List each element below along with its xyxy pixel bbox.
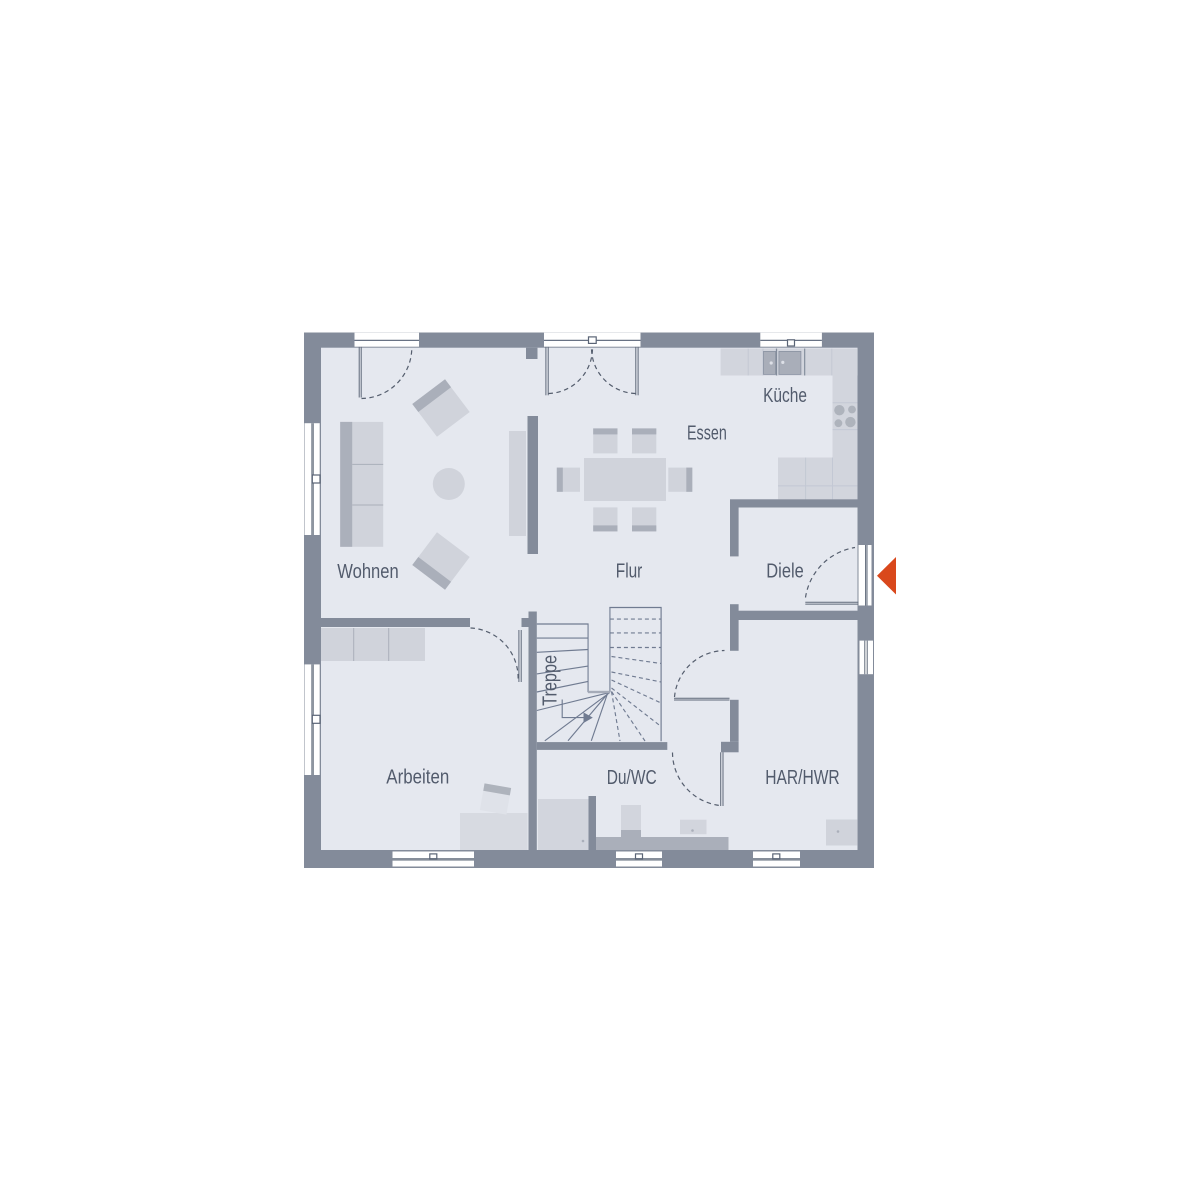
svg-text:Essen: Essen bbox=[687, 421, 727, 444]
svg-text:Wohnen: Wohnen bbox=[337, 560, 398, 583]
svg-text:Flur: Flur bbox=[616, 560, 643, 583]
svg-text:Küche: Küche bbox=[763, 384, 807, 407]
svg-text:Diele: Diele bbox=[766, 560, 804, 583]
svg-text:Du/WC: Du/WC bbox=[607, 766, 657, 789]
svg-text:Treppe: Treppe bbox=[539, 655, 562, 706]
svg-text:HAR/HWR: HAR/HWR bbox=[765, 766, 840, 789]
svg-text:Arbeiten: Arbeiten bbox=[386, 766, 449, 789]
